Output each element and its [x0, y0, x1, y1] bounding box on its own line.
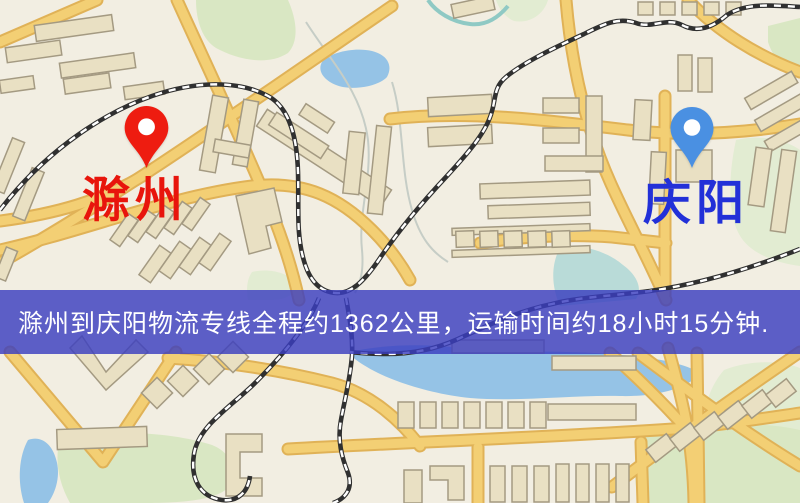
destination-city-label: 庆阳 — [643, 180, 749, 228]
destination-pin-icon — [668, 103, 716, 173]
map-viewport: 滁州 庆阳 滁州到庆阳物流专线全程约1362公里，运输时间约18小时15分钟. — [0, 0, 800, 503]
route-info-banner: 滁州到庆阳物流专线全程约1362公里，运输时间约18小时15分钟. — [0, 290, 800, 354]
destination-pin-shape — [671, 107, 714, 168]
route-info-text: 滁州到庆阳物流专线全程约1362公里，运输时间约18小时15分钟. — [18, 304, 769, 340]
origin-pin-hole — [138, 118, 155, 135]
map-canvas — [0, 0, 800, 503]
origin-pin-shape — [125, 106, 169, 168]
origin-city-label: 滁州 — [82, 177, 188, 225]
origin-pin-icon — [122, 105, 171, 170]
destination-pin-hole — [684, 119, 701, 136]
